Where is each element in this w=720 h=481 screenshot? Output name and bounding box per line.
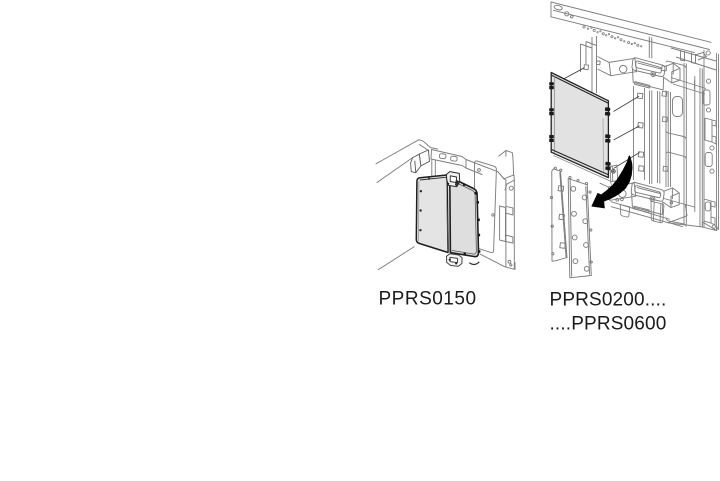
svg-text:....PPRS0600: ....PPRS0600 bbox=[550, 314, 667, 335]
svg-text:PPRS0150: PPRS0150 bbox=[379, 289, 477, 310]
svg-text:PPRS0200....: PPRS0200.... bbox=[550, 290, 667, 311]
